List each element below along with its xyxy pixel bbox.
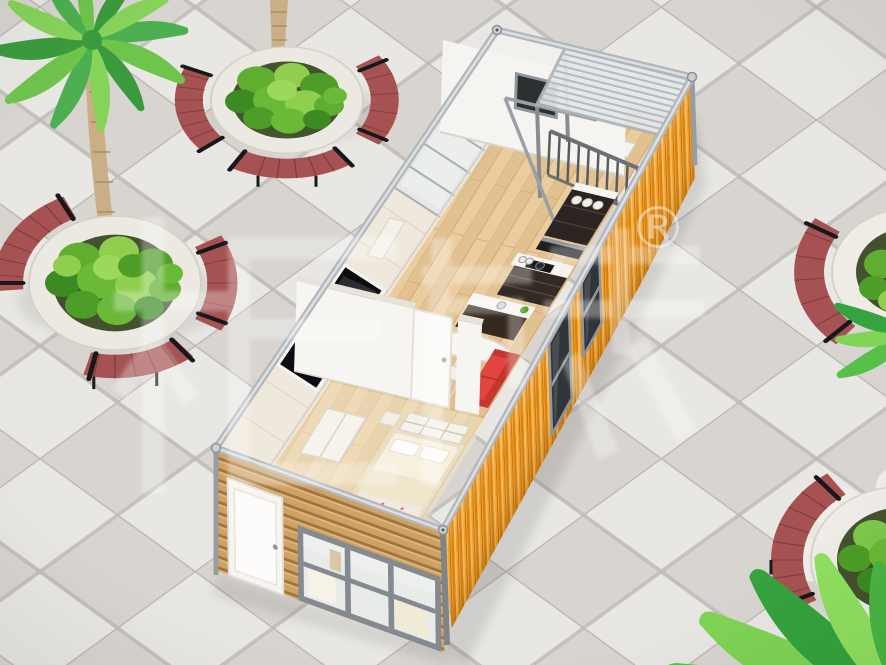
render-canvas: ® <box>0 0 886 665</box>
render-stage: ® <box>0 0 886 665</box>
vignette <box>0 0 886 665</box>
